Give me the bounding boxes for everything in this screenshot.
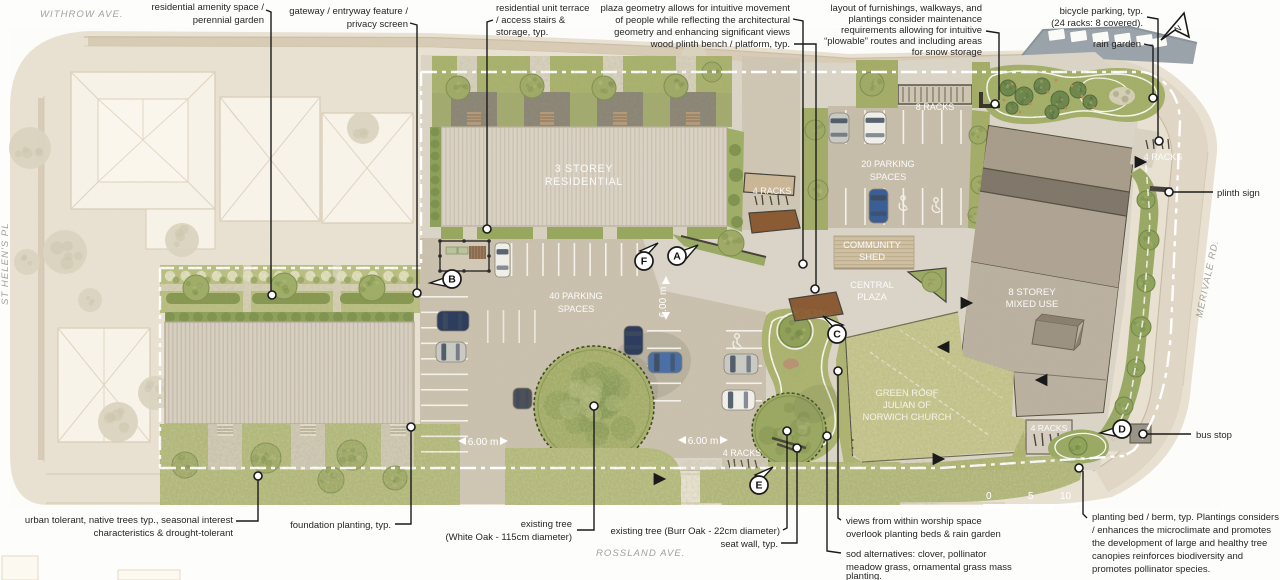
- svg-text:plantings consider maintenance: plantings consider maintenance: [848, 14, 982, 25]
- svg-text:10: 10: [1060, 491, 1072, 502]
- svg-text:ST HELEN'S PL: ST HELEN'S PL: [0, 222, 11, 305]
- svg-text:requirements allowing for intu: requirements allowing for intuitive: [841, 25, 982, 36]
- svg-text:/ enhances the microclimate an: / enhances the microclimate and promotes: [1092, 525, 1271, 536]
- svg-text:existing tree: existing tree: [521, 519, 572, 530]
- svg-text:rain garden: rain garden: [1093, 39, 1141, 50]
- svg-text:perennial garden: perennial garden: [193, 15, 264, 26]
- svg-text:6.00 m: 6.00 m: [658, 287, 669, 318]
- svg-text:bicycle parking, typ.: bicycle parking, typ.: [1060, 6, 1143, 17]
- svg-text:4 RACKS: 4 RACKS: [723, 448, 762, 458]
- svg-text:5: 5: [1028, 491, 1034, 502]
- svg-text:geometry and enhancing signifi: geometry and enhancing significant views: [614, 27, 790, 38]
- svg-text:plinth sign: plinth sign: [1217, 188, 1260, 199]
- svg-text:SPACES: SPACES: [558, 304, 595, 314]
- svg-text:wood plinth bench / platform,: wood plinth bench / platform, typ.: [650, 39, 790, 50]
- svg-text:foundation planting, typ.: foundation planting, typ.: [290, 520, 391, 531]
- svg-text:residential unit terrace: residential unit terrace: [496, 3, 589, 14]
- svg-text:for snow storage: for snow storage: [912, 47, 982, 58]
- svg-text:views from within worship spac: views from within worship space: [846, 516, 982, 527]
- svg-text:plaza geometry allows for intu: plaza geometry allows for intuitive move…: [600, 3, 790, 14]
- svg-text:layout of furnishings, walkway: layout of furnishings, walkways, and: [830, 3, 982, 14]
- svg-text:“plowable” routes and includin: “plowable” routes and including areas: [824, 36, 982, 47]
- svg-text:E: E: [755, 480, 762, 492]
- svg-text:residential amenity space /: residential amenity space /: [152, 2, 265, 13]
- svg-text:6.00 m: 6.00 m: [688, 436, 719, 447]
- svg-text:/ access stairs &: / access stairs &: [496, 15, 566, 26]
- svg-text:existing tree (Burr Oak - 22cm: existing tree (Burr Oak - 22cm diameter): [611, 526, 780, 537]
- svg-text:the development of large and h: the development of large and healthy tre…: [1092, 538, 1267, 549]
- svg-text:0: 0: [986, 491, 992, 502]
- svg-text:WITHROW AVE.: WITHROW AVE.: [40, 9, 124, 20]
- svg-text:planting bed / berm, typ. Plan: planting bed / berm, typ. Plantings cons…: [1092, 512, 1279, 523]
- svg-text:C: C: [833, 329, 841, 341]
- svg-text:overlook planting beds & rain: overlook planting beds & rain garden: [846, 529, 1001, 540]
- svg-text:40 PARKING: 40 PARKING: [549, 291, 602, 301]
- svg-text:(24 racks: 8 covered).: (24 racks: 8 covered).: [1051, 18, 1143, 29]
- svg-text:planting.: planting.: [846, 571, 882, 580]
- svg-text:gateway / entryway feature /: gateway / entryway feature /: [289, 6, 408, 17]
- svg-text:of people while reflecting the: of people while reflecting the architect…: [615, 15, 790, 26]
- svg-text:sod alternatives: clover, poll: sod alternatives: clover, pollinator: [846, 549, 986, 560]
- svg-text:privacy screen: privacy screen: [347, 19, 408, 30]
- svg-text:promotes pollinator species.: promotes pollinator species.: [1092, 564, 1210, 575]
- svg-text:bus stop: bus stop: [1196, 430, 1232, 441]
- svg-text:B: B: [448, 274, 456, 286]
- svg-text:characteristics & drought-tole: characteristics & drought-tolerant: [94, 528, 234, 539]
- svg-text:seat wall, typ.: seat wall, typ.: [720, 539, 778, 550]
- svg-text:D: D: [1118, 424, 1126, 436]
- svg-text:A: A: [673, 251, 681, 263]
- svg-text:ROSSLAND AVE.: ROSSLAND AVE.: [596, 548, 685, 559]
- svg-text:urban tolerant, native trees t: urban tolerant, native trees typ., seaso…: [25, 515, 233, 526]
- svg-text:6.00 m: 6.00 m: [468, 437, 499, 448]
- svg-text:canopies reinforces biodiversi: canopies reinforces biodiversity and: [1092, 551, 1243, 562]
- svg-text:storage, typ.: storage, typ.: [496, 27, 548, 38]
- svg-text:(White Oak - 115cm diameter): (White Oak - 115cm diameter): [445, 532, 572, 543]
- svg-text:F: F: [641, 256, 648, 268]
